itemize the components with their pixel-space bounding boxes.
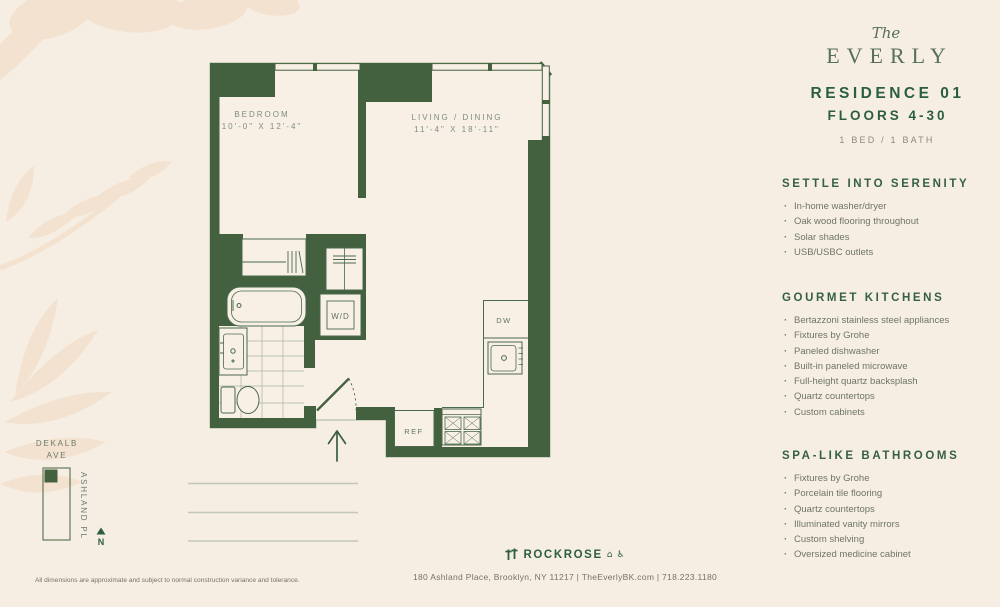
- brand-name: EVERLY: [770, 43, 1000, 69]
- list-item: Custom cabinets: [782, 405, 1000, 420]
- section-bathrooms: SPA-LIKE BATHROOMS Fixtures by Grohe Por…: [782, 450, 1000, 563]
- list-item: Oak wood flooring throughout: [782, 214, 1000, 229]
- toilet: [221, 387, 259, 414]
- wd-label: W/D: [331, 312, 350, 321]
- bathtub: [227, 287, 306, 326]
- section-title: SPA-LIKE BATHROOMS: [782, 450, 1000, 462]
- list-item: Oversized medicine cabinet: [782, 547, 1000, 562]
- map-street-dekalb: DEKALB: [36, 439, 78, 448]
- list-item: In-home washer/dryer: [782, 199, 1000, 214]
- bedroom-dims: 10'-0" X 12'-4": [222, 122, 303, 131]
- bedroom-closet: [242, 239, 306, 276]
- list-item: Custom shelving: [782, 532, 1000, 547]
- list-item: Paneled dishwasher: [782, 344, 1000, 359]
- living-dims: 11'-4" X 18'-11": [414, 125, 500, 134]
- map-street-ave: AVE: [47, 451, 68, 460]
- list-item: Solar shades: [782, 230, 1000, 245]
- amenity-list: Bertazzoni stainless steel appliances Fi…: [782, 313, 1000, 420]
- list-item: Full-height quartz backsplash: [782, 374, 1000, 389]
- section-serenity: SETTLE INTO SERENITY In-home washer/drye…: [782, 178, 1000, 260]
- amenity-list: Fixtures by Grohe Porcelain tile floorin…: [782, 471, 1000, 563]
- section-title: SETTLE INTO SERENITY: [782, 178, 1000, 190]
- entry-arrow-icon: [329, 431, 346, 461]
- disclaimer-text: All dimensions are approximate and subje…: [35, 577, 300, 584]
- floors-subtitle: FLOORS 4-30: [770, 108, 1000, 123]
- list-item: Fixtures by Grohe: [782, 471, 1000, 486]
- section-kitchens: GOURMET KITCHENS Bertazzoni stainless st…: [782, 292, 1000, 420]
- note-lines: [188, 484, 358, 542]
- list-item: Illuminated vanity mirrors: [782, 517, 1000, 532]
- north-arrow-icon: [97, 528, 106, 535]
- list-item: Quartz countertops: [782, 502, 1000, 517]
- list-item: Bertazzoni stainless steel appliances: [782, 313, 1000, 328]
- developer-name: ROCKROSE: [523, 549, 602, 561]
- list-item: Fixtures by Grohe: [782, 328, 1000, 343]
- living-label: LIVING / DINING: [412, 113, 503, 122]
- residence-title: RESIDENCE 01: [770, 85, 1000, 103]
- brand-pre: The: [770, 24, 1000, 42]
- floorplan-brochure-page: BEDROOM 10'-0" X 12'-4" LIVING / DINING …: [0, 0, 1000, 607]
- linen-closet: [326, 248, 363, 290]
- list-item: Porcelain tile flooring: [782, 486, 1000, 501]
- bathroom-sink: [219, 328, 247, 375]
- list-item: Built-in paneled microwave: [782, 359, 1000, 374]
- kitchen-sink: [488, 342, 523, 374]
- dw-label: DW: [496, 316, 512, 325]
- equal-housing-icon: ⌂: [607, 550, 613, 560]
- accessibility-icon: ♿: [616, 550, 624, 560]
- bedroom-label: BEDROOM: [234, 110, 289, 119]
- bed-bath-line: 1 BED / 1 BATH: [770, 135, 1000, 145]
- map-building-marker: [45, 470, 58, 483]
- brand-header: The EVERLY RESIDENCE 01 FLOORS 4-30 1 BE…: [770, 24, 1000, 145]
- developer-logo-row: ROCKROSE⌂♿: [400, 546, 730, 564]
- list-item: Quartz countertops: [782, 389, 1000, 404]
- stove: [442, 409, 481, 445]
- amenity-list: In-home washer/dryer Oak wood flooring t…: [782, 199, 1000, 260]
- ref-label: REF: [404, 427, 424, 436]
- north-label: N: [98, 537, 105, 547]
- contact-line: 180 Ashland Place, Brooklyn, NY 11217 | …: [363, 572, 767, 582]
- section-title: GOURMET KITCHENS: [782, 292, 1000, 304]
- list-item: USB/USBC outlets: [782, 245, 1000, 260]
- map-street-ashland: ASHLAND PL: [79, 472, 88, 540]
- rockrose-logo-icon: [505, 548, 518, 561]
